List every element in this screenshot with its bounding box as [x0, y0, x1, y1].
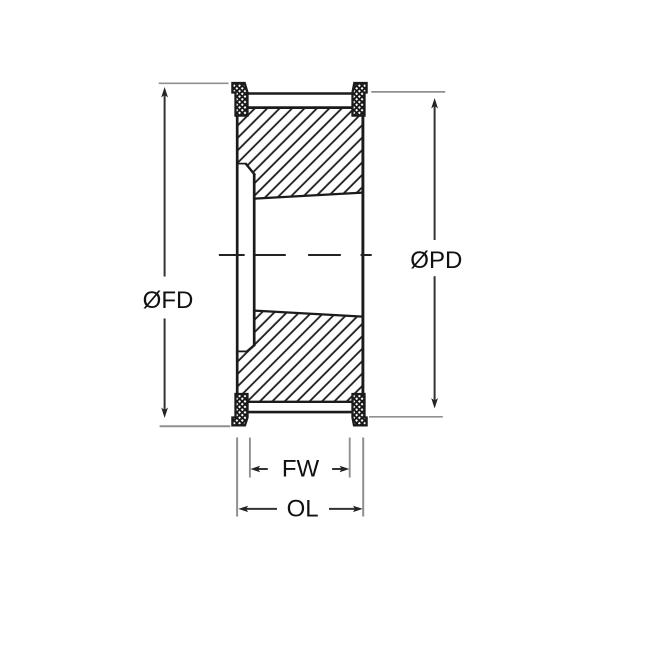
svg-text:ØPD: ØPD	[410, 247, 462, 274]
svg-text:ØFD: ØFD	[143, 287, 194, 314]
svg-text:FW: FW	[282, 456, 320, 483]
svg-text:OL: OL	[287, 496, 319, 523]
